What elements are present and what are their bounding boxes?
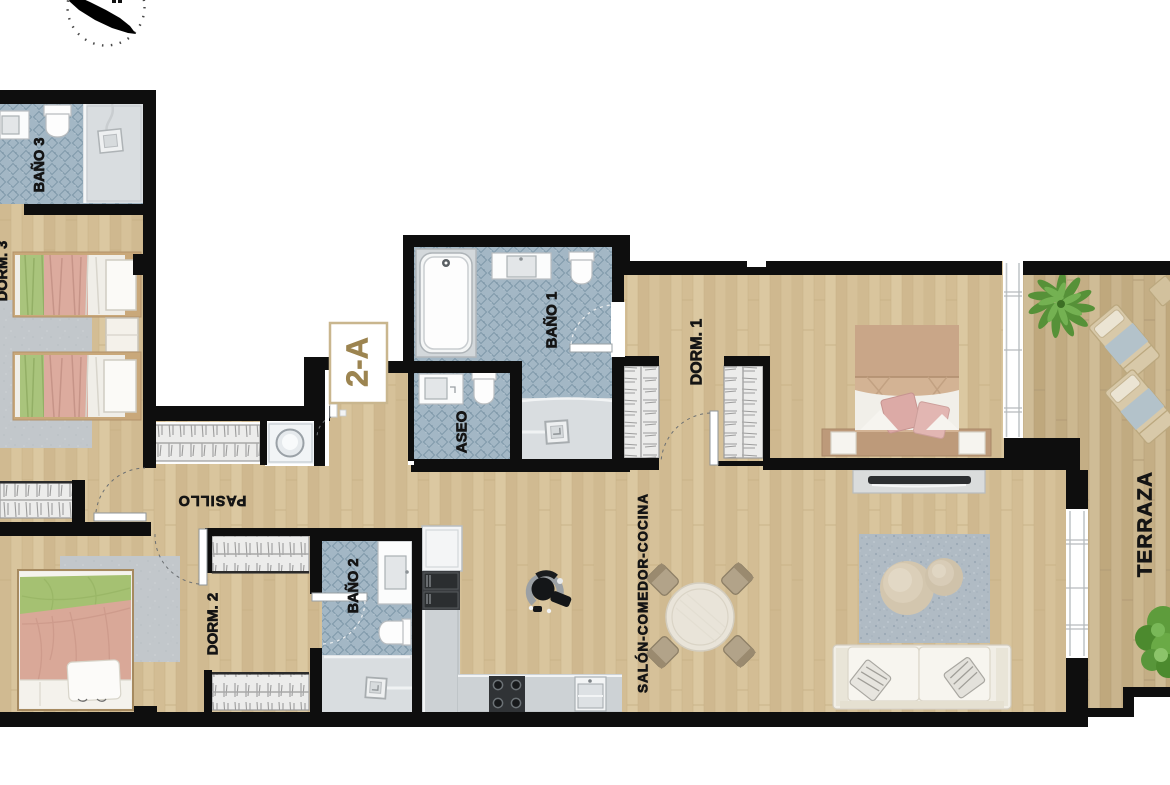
- svg-text:2-A: 2-A: [340, 337, 375, 387]
- svg-text:DORM. 1: DORM. 1: [689, 319, 706, 386]
- svg-text:DORM. 2: DORM. 2: [205, 593, 222, 656]
- svg-text:ASEO: ASEO: [454, 410, 471, 453]
- svg-text:BAÑO 1: BAÑO 1: [543, 292, 561, 349]
- svg-text:SALÓN-COMEDOR-COCINA: SALÓN-COMEDOR-COCINA: [636, 493, 651, 693]
- svg-text:BAÑO 3: BAÑO 3: [30, 138, 48, 193]
- svg-text:BAÑO 2: BAÑO 2: [344, 559, 362, 614]
- svg-text:DORM. 3: DORM. 3: [0, 241, 11, 301]
- svg-text:PASILLO: PASILLO: [178, 492, 247, 508]
- svg-text:TERRAZA: TERRAZA: [1134, 471, 1157, 577]
